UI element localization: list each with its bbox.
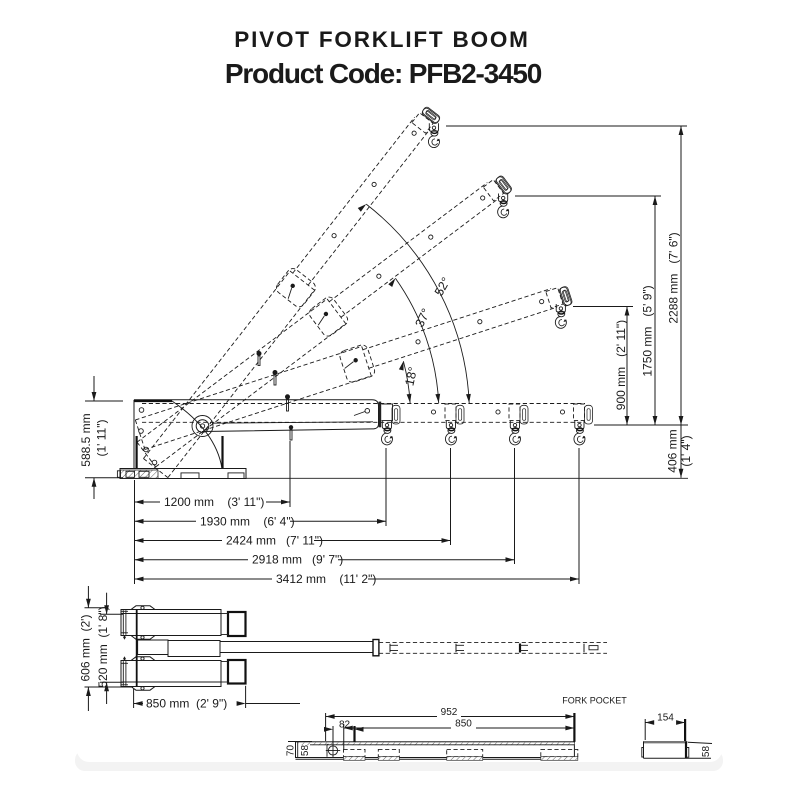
svg-text:58: 58 (701, 746, 712, 758)
svg-text:82: 82 (339, 719, 351, 730)
svg-text:850 mm (2' 9"): 850 mm (2' 9") (146, 697, 227, 711)
svg-text:2424 mm (7' 11"): 2424 mm (7' 11") (226, 534, 323, 548)
svg-text:1930 mm (6' 4"): 1930 mm (6' 4") (200, 514, 295, 528)
svg-text:1750 mm (5' 9"): 1750 mm (5' 9") (641, 285, 655, 376)
svg-text:952: 952 (441, 707, 458, 718)
svg-text:1200 mm (3' 11"): 1200 mm (3' 11") (164, 495, 264, 509)
svg-text:PIVOT FORKLIFT BOOM: PIVOT FORKLIFT BOOM (234, 27, 529, 52)
svg-text:850: 850 (455, 718, 472, 729)
svg-text:3412 mm (11' 2"): 3412 mm (11' 2") (276, 572, 376, 586)
svg-text:70: 70 (286, 745, 297, 757)
svg-text:2918 mm (9' 7"): 2918 mm (9' 7") (252, 553, 343, 567)
svg-text:(1' 11"): (1' 11") (95, 419, 109, 456)
svg-text:58: 58 (300, 745, 311, 757)
svg-text:900 mm (2' 11"): 900 mm (2' 11") (614, 320, 628, 410)
svg-text:(1' 4"): (1' 4") (679, 435, 693, 466)
svg-text:FORK POCKET: FORK POCKET (562, 696, 627, 706)
svg-text:Product Code: PFB2-3450: Product Code: PFB2-3450 (225, 58, 542, 89)
svg-text:588.5 mm: 588.5 mm (79, 413, 93, 466)
svg-text:606 mm (2'): 606 mm (2') (79, 615, 93, 682)
svg-text:520 mm (1' 8"): 520 mm (1' 8") (96, 606, 110, 687)
svg-text:2288 mm (7' 6"): 2288 mm (7' 6") (667, 232, 681, 323)
svg-text:154: 154 (657, 713, 674, 724)
svg-text:406 mm: 406 mm (666, 429, 680, 472)
